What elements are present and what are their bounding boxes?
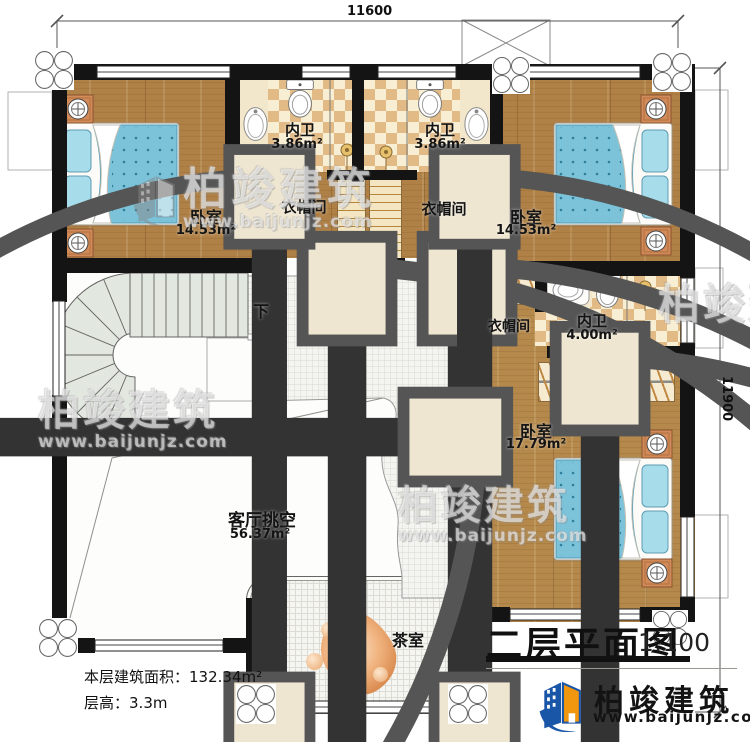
watermark-logo-icon	[131, 168, 183, 226]
tea-stone-small	[321, 622, 337, 638]
watermark-url: www.baijunjz.com	[398, 528, 588, 545]
floor-height-value: 3.3m	[129, 694, 167, 712]
watermark-url: www.baijunjz.com	[38, 434, 228, 451]
skylight	[462, 20, 550, 66]
room-label-tea-room: 茶室	[392, 627, 424, 651]
floor-area-label: 本层建筑面积：	[84, 668, 189, 686]
floor-area-value: 132.34m²	[189, 668, 262, 686]
watermark-url: www.baijunjz.com	[183, 214, 375, 231]
tea-stone-small	[306, 653, 323, 670]
room-area-bath-tl: 3.86m²	[271, 137, 322, 152]
watermark: 柏竣建筑 www.baijunjz.com	[131, 168, 375, 231]
room-area-bath-tr: 3.86m²	[414, 137, 465, 152]
room-area-bedroom-se: 17.79m²	[506, 437, 566, 452]
tea-stone-small	[373, 667, 388, 682]
watermark: 柏竣建筑 www.baijunjz.com	[398, 486, 588, 545]
watermark-name: 柏竣建筑	[38, 386, 218, 435]
tea-stone-small	[348, 602, 365, 619]
brand-logo-icon	[536, 674, 590, 732]
watermark: 柏竣建筑	[658, 284, 750, 326]
room-area-living-void: 56.37m²	[230, 527, 290, 542]
dimension-top: 11600	[347, 4, 392, 19]
room-label-closet-east: 衣帽间	[488, 316, 530, 336]
floor-height-label: 层高：	[84, 694, 129, 712]
dimension-right: 11900	[719, 376, 734, 421]
floor-area-info: 本层建筑面积：132.34m²	[84, 666, 262, 687]
bath-east-vanity-floor	[543, 276, 592, 307]
room-label-closet-right: 衣帽间	[421, 198, 466, 219]
watermark-name: 柏竣建筑	[658, 280, 750, 329]
watermark: 柏竣建筑 www.baijunjz.com	[38, 390, 228, 451]
floor-plan: 11600 11900 卧室 14.53m² 内卫 3.86m² 内卫 3.86…	[0, 0, 750, 742]
floor-height-info: 层高：3.3m	[84, 692, 167, 713]
wardrobe-east	[538, 362, 675, 402]
watermark-name: 柏竣建筑	[398, 483, 570, 529]
title-rule-thin	[486, 668, 737, 669]
closet-east-rail	[478, 276, 539, 305]
room-area-bedroom-tr: 14.53m²	[496, 223, 556, 238]
stair-down-label: 下	[253, 298, 269, 322]
sheet-scale: 1:100	[638, 628, 710, 657]
title-rule-thick	[486, 656, 690, 662]
watermark-name: 柏竣建筑	[183, 164, 375, 215]
room-area-bath-east: 4.00m²	[566, 328, 617, 343]
brand-url: www.baijunjz.com	[593, 708, 750, 726]
